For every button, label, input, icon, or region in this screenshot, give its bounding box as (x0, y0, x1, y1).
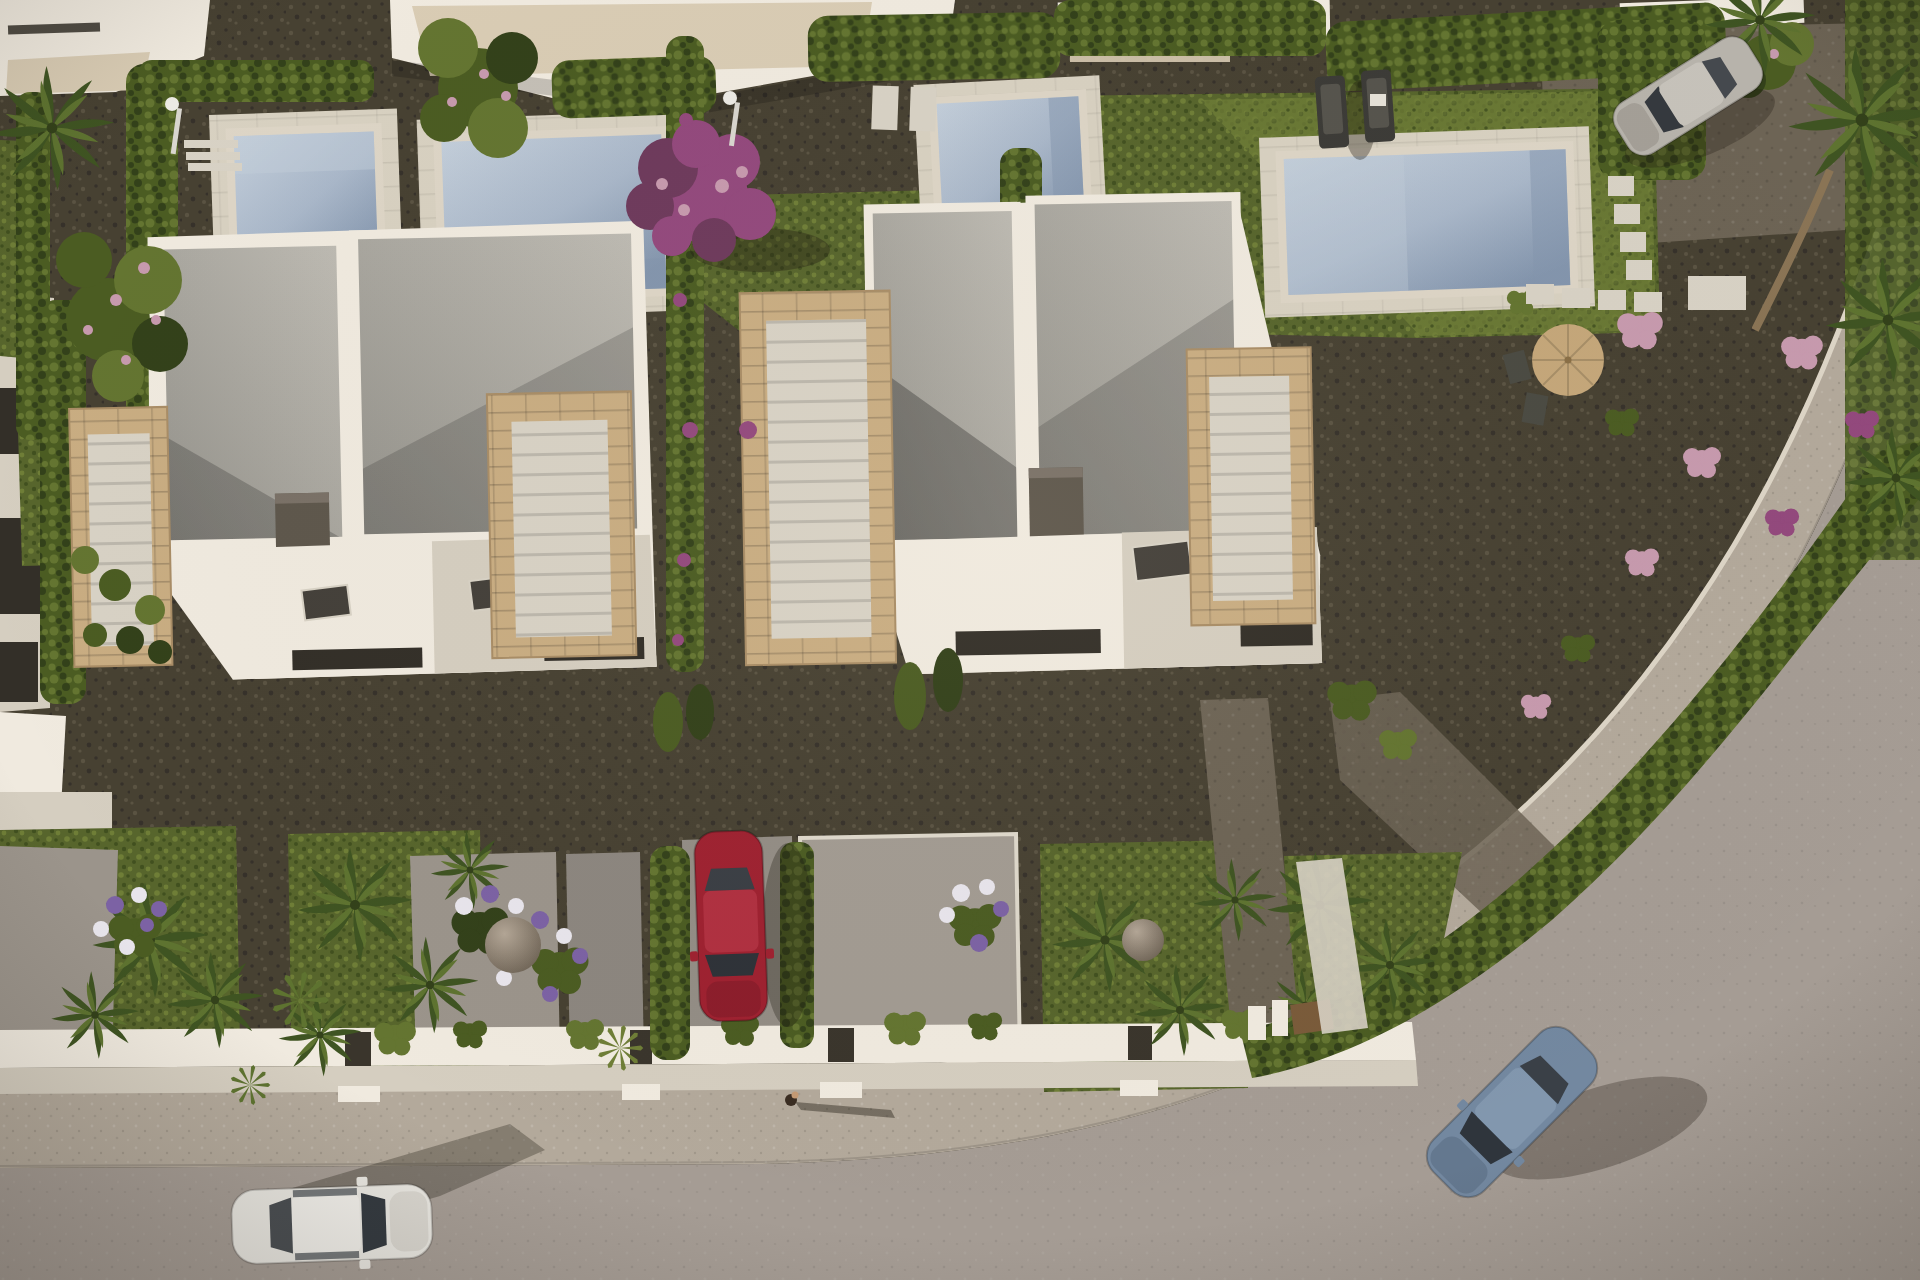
light-vignette (0, 0, 1920, 1280)
aerial-render (0, 0, 1920, 1280)
render-viewport (0, 0, 1920, 1280)
